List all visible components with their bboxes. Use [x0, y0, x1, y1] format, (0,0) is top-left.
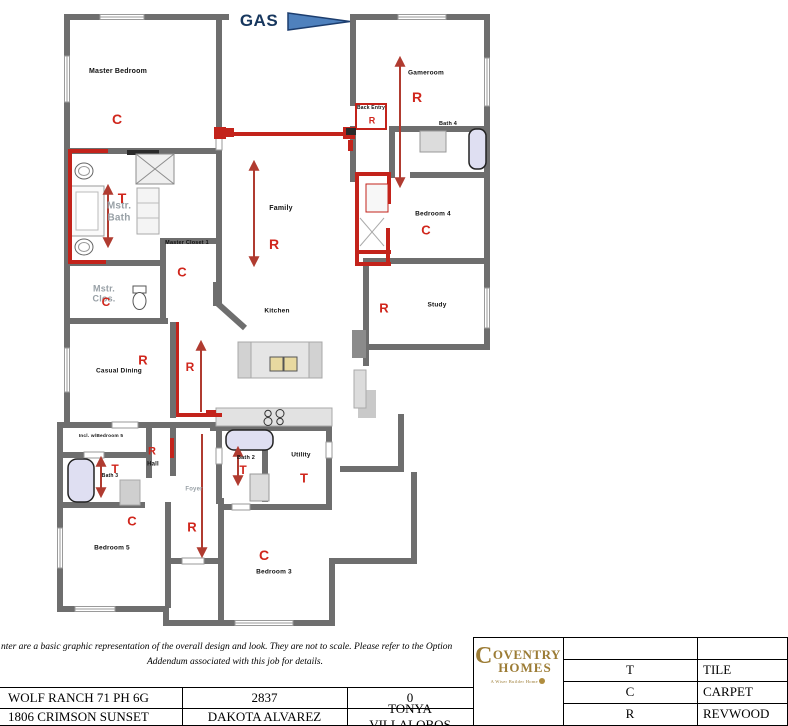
- master-vanity-icon: [70, 163, 104, 255]
- bath3-tub-icon: [68, 459, 94, 502]
- flooring-mark-master-closet1: C: [177, 266, 186, 279]
- room-label-master-bedroom: Master Bedroom: [89, 68, 147, 76]
- red-highlight-layer: [68, 104, 391, 458]
- flooring-mark-bedroom4: C: [421, 224, 430, 237]
- linen-closet-icon: [120, 480, 140, 505]
- room-label-gameroom: Gameroom: [408, 69, 444, 76]
- fixtures-layer: [68, 129, 486, 505]
- room-label-bath4: Bath 4: [439, 121, 457, 127]
- flooring-mark-bath3: T: [111, 463, 118, 475]
- legend-material-tile: TILE: [703, 659, 787, 681]
- logo-flower-icon: [539, 678, 545, 684]
- bath4-tub-icon: [469, 129, 486, 169]
- legend-code-revwood: R: [563, 703, 697, 725]
- flooring-mark-hall: R: [148, 447, 156, 458]
- room-label-study: Study: [427, 301, 446, 308]
- room-label-kitchen: Kitchen: [264, 307, 289, 314]
- cooktop-counter-icon: [216, 408, 332, 426]
- bath2-shower-icon: [250, 474, 269, 501]
- legend-material-revwood: REVWOOD: [703, 703, 787, 725]
- room-label-bedroom4: Bedroom 4: [415, 210, 451, 217]
- disclaimer-line1: nter are a basic graphic representation …: [1, 641, 471, 654]
- legend-code-carpet: C: [563, 681, 697, 703]
- room-label-back-entry: Back Entry: [357, 106, 385, 112]
- gas-label: GAS: [240, 11, 278, 31]
- room-label-master-closet1: Master Closet 1: [165, 240, 209, 246]
- legend-code-tile: T: [563, 659, 697, 681]
- flooring-mark-master-bedroom: C: [112, 112, 122, 126]
- flooring-mark-utility: T: [300, 472, 308, 485]
- room-label-utility: Utility: [291, 451, 310, 458]
- community-name: WOLF RANCH 71 PH 6G: [8, 687, 178, 708]
- consultant-name: TONYA VILLALOBOS: [347, 708, 473, 725]
- room-label-bedroom3: Bedroom 3: [256, 568, 292, 575]
- floor-plan-drawing: [0, 0, 788, 634]
- fridge-icon: [352, 330, 366, 358]
- logo-tagline: A Wiser Builder Home: [491, 679, 538, 684]
- coventry-homes-logo: COVENTRY HOMES A Wiser Builder Home: [474, 640, 562, 704]
- room-label-bedroom5: Bedroom 5: [94, 544, 130, 551]
- flooring-mark-family: R: [269, 237, 279, 251]
- kitchen-island-icon: [238, 342, 322, 378]
- flooring-mark-back-entry: R: [369, 117, 376, 126]
- flooring-mark-bedroom5: C: [127, 515, 136, 528]
- flooring-mark-study: R: [379, 302, 388, 315]
- room-label-casual-dining: Casual Dining: [96, 367, 142, 374]
- disclaimer-line2: Addendum associated with this job for de…: [0, 656, 470, 669]
- flooring-mark-bedroom3: C: [259, 548, 269, 562]
- room-label-hall: Hall: [147, 462, 159, 469]
- flooring-mark-foyer: R: [187, 521, 196, 534]
- flooring-mark-bath2: T: [239, 464, 246, 476]
- flooring-mark-mstr-clos: C: [102, 296, 111, 308]
- logo-initial: C: [475, 643, 493, 669]
- master-shower-icon: [136, 154, 174, 184]
- plan-number: 2837: [182, 687, 347, 708]
- legend-material-carpet: CARPET: [703, 681, 787, 703]
- floor-plan-page: GAS Master Bedroom Gameroom Back Entry B…: [0, 0, 788, 726]
- room-label-foyer: Foyer: [185, 487, 202, 494]
- toilet-icon: [133, 286, 146, 310]
- designer-name: DAKOTA ALVAREZ: [182, 708, 347, 725]
- pantry-cabinet-icon: [354, 370, 366, 408]
- room-label-incl-w-bedroom5: Incl. w/Bedroom 5: [79, 434, 123, 440]
- walls-layer: [57, 14, 490, 626]
- logo-name-line2: HOMES: [488, 661, 562, 674]
- address: 1806 CRIMSON SUNSET: [8, 708, 178, 725]
- room-label-bath2: Bath 2: [237, 455, 255, 461]
- flooring-mark-casual-dining: R: [138, 354, 147, 367]
- flooring-mark-mstr-bath: T: [118, 191, 127, 205]
- flooring-mark-gameroom: R: [412, 90, 422, 104]
- flooring-mark-gallery: R: [186, 361, 195, 373]
- room-label-family: Family: [269, 205, 292, 213]
- bath4-cabinet-icon: [420, 131, 446, 152]
- master-linen-icon: [137, 188, 159, 234]
- gas-arrow-icon: [288, 13, 350, 30]
- bath2-tub-icon: [226, 430, 273, 450]
